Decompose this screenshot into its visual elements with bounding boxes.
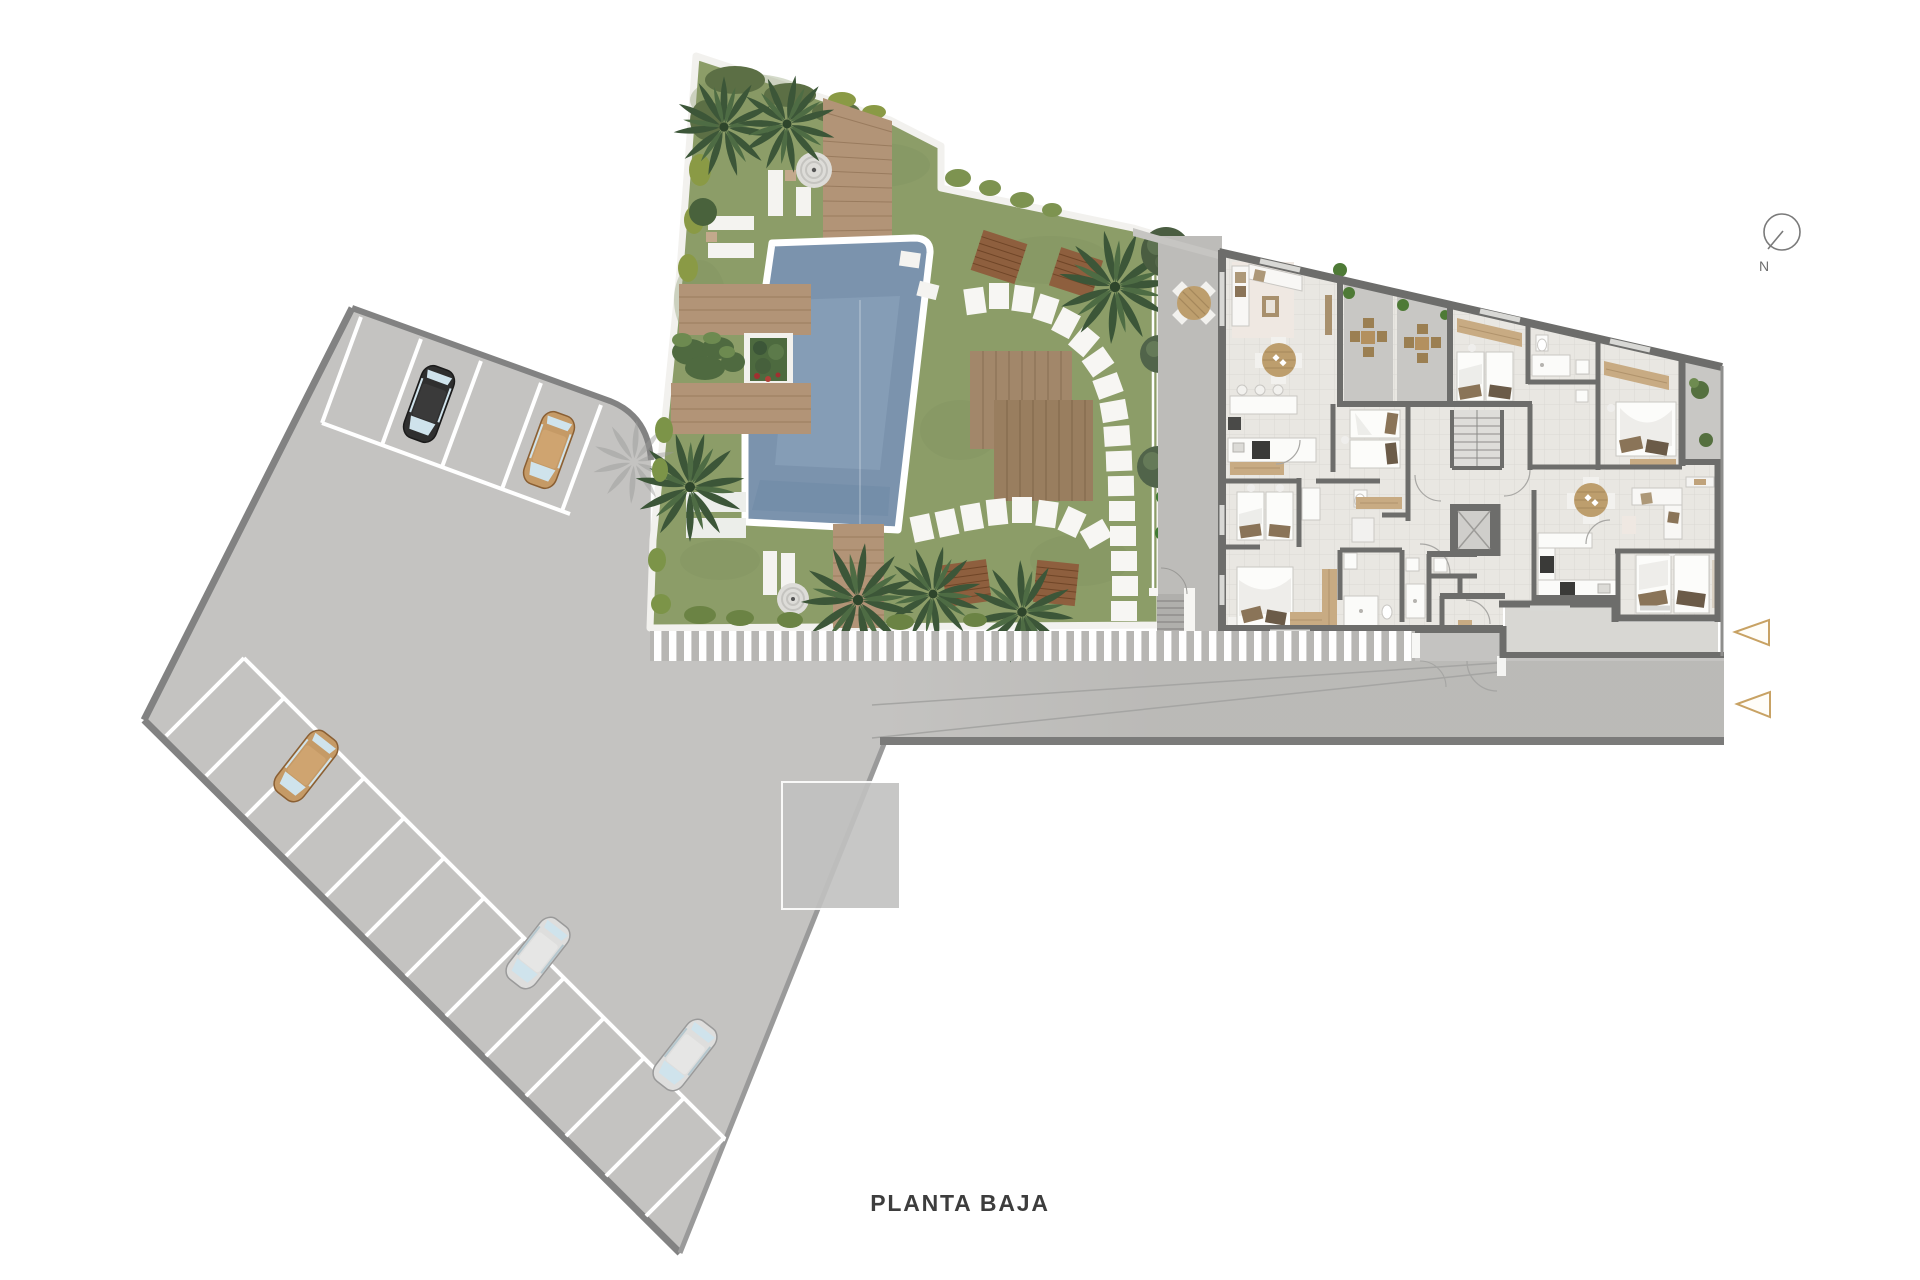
- svg-text:N: N: [1759, 258, 1769, 274]
- svg-text:PLANTA BAJA: PLANTA BAJA: [870, 1190, 1050, 1216]
